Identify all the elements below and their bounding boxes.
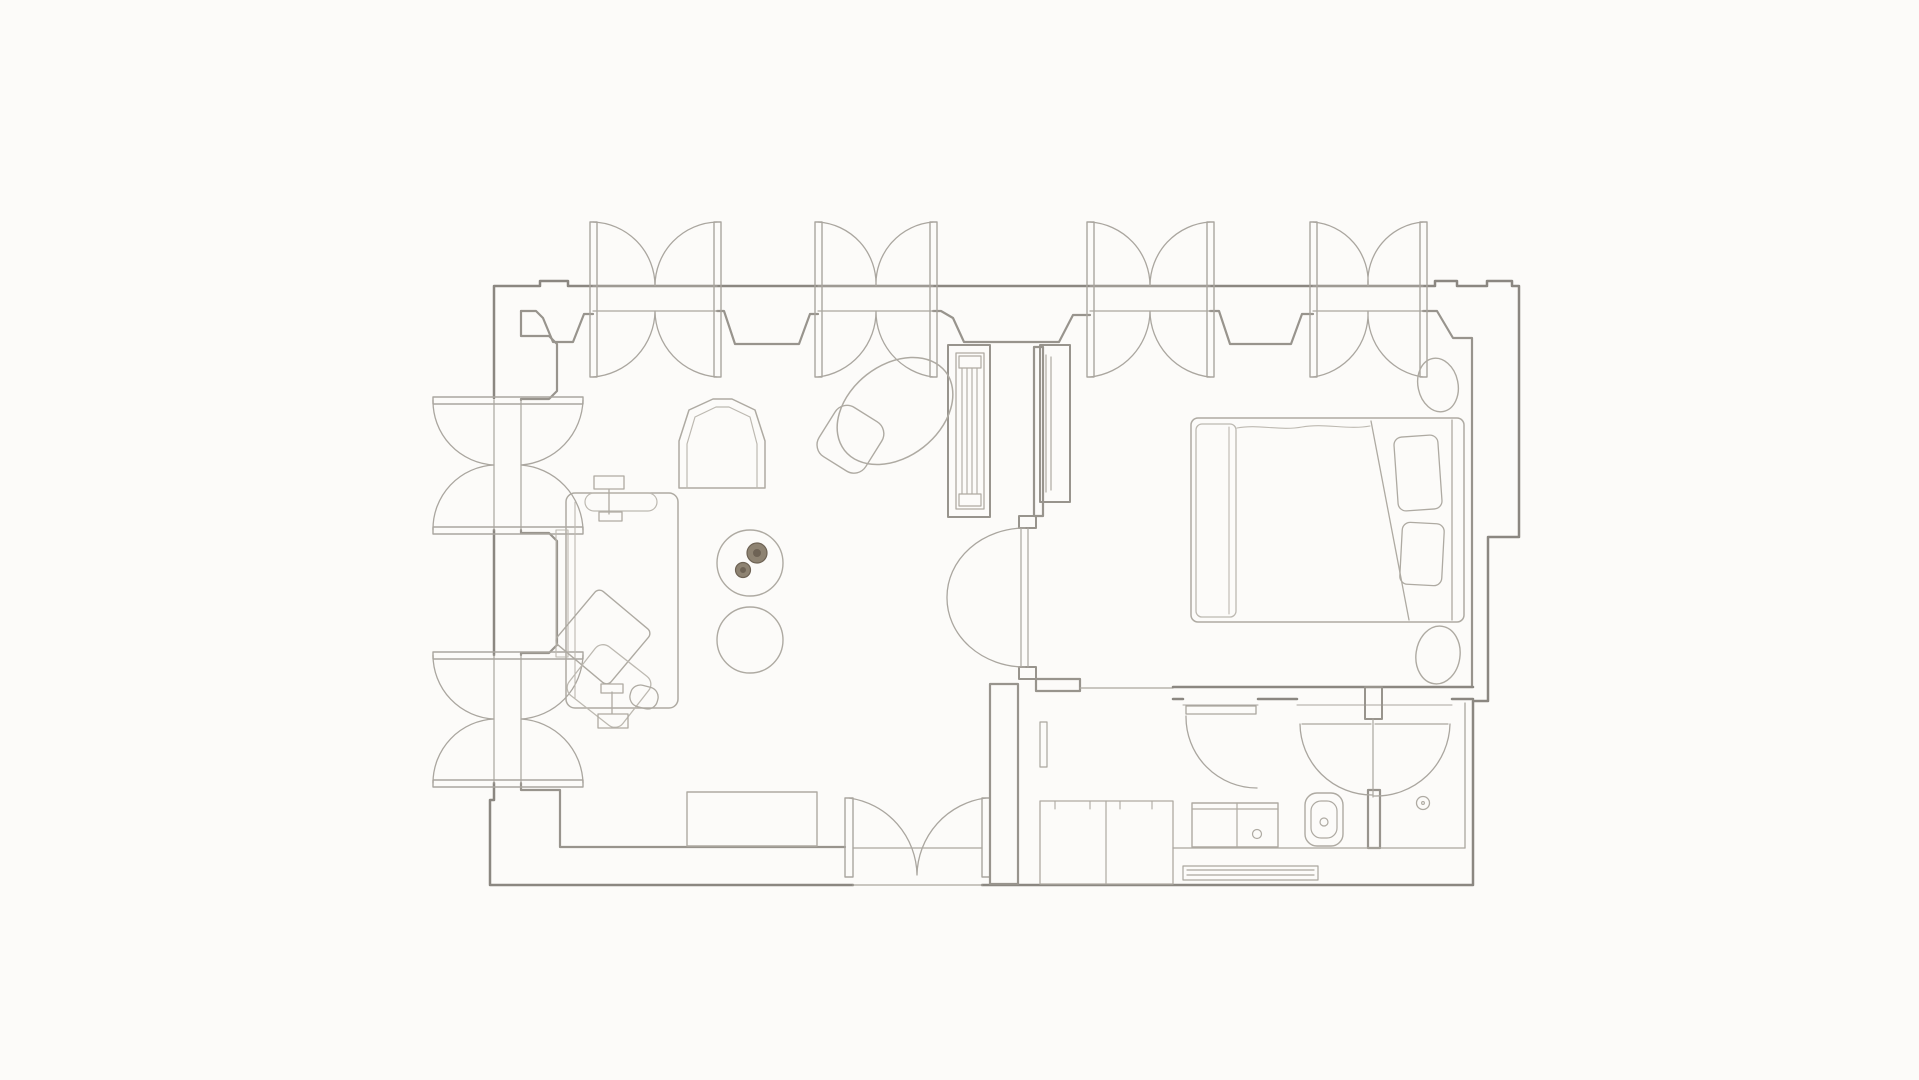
toilet-bowl-inner [1311, 801, 1337, 838]
window-1-leaf-right [714, 222, 721, 377]
toilet-flush-button [1320, 818, 1328, 826]
window-3-leaf-left [1087, 222, 1094, 377]
window-3-leaf-right [1207, 222, 1214, 377]
closet-living-inner [956, 353, 984, 509]
arch-armchair-outer [679, 399, 765, 488]
sofa-cushion-lower [563, 641, 655, 732]
hall-closet-hinge-ticks [1055, 801, 1152, 809]
partition-door-jamb-top [1019, 516, 1036, 528]
bed-foot-blanket [1196, 424, 1236, 617]
closet-bedroom-inner [1046, 355, 1051, 492]
partition-door-swing-arcs [947, 528, 1025, 667]
closet-living-louvers [962, 368, 977, 494]
left-window-1-leaf-top [433, 397, 583, 404]
round-side-table-flowers [717, 530, 783, 596]
desk-chair-south [598, 684, 628, 728]
shower-double-door-leaf-lines [1302, 719, 1448, 797]
window-4-leaf-left [1310, 222, 1317, 377]
closet-bedroom-outer [1040, 345, 1070, 502]
entry-door-leaf-right [982, 798, 990, 877]
partition-door-leaf-line [1021, 528, 1028, 667]
window-2-glazing [818, 286, 933, 311]
inner-wall-top [521, 311, 1472, 687]
inner-wall-left [521, 311, 557, 655]
oval-table-chair [812, 400, 889, 478]
bathroom-north-wall [1173, 687, 1473, 699]
window-3-swing-arcs [1090, 222, 1210, 377]
sideboard-bottom-wall [687, 792, 817, 846]
bathroom-door-left-swing-arc [1186, 716, 1257, 788]
window-1-glazing [593, 286, 717, 311]
round-side-table-plain [717, 607, 783, 673]
hall-wall-mirror [1040, 722, 1047, 767]
entry-door-swing-arcs [849, 798, 986, 875]
left-window-1-glazing [494, 400, 521, 530]
arch-armchair-inner [687, 407, 757, 488]
window-1-swing-arcs [593, 222, 717, 377]
bed-pillow-2 [1399, 522, 1444, 586]
window-4-leaf-right [1420, 222, 1427, 377]
sofa-armrest-bolster [585, 493, 657, 511]
desk-chair-north [594, 476, 624, 521]
bathroom-divider-nub [1365, 687, 1382, 719]
window-1-leaf-left [590, 222, 597, 377]
shower-drain [1417, 797, 1430, 810]
vanity-basin-drain [1253, 830, 1262, 839]
window-3-glazing [1090, 286, 1210, 311]
left-window-1-swing-arcs [433, 400, 583, 530]
left-window-2-leaf-top [433, 652, 583, 659]
bed-pillow-1 [1393, 435, 1442, 512]
window-2-swing-arcs [818, 222, 933, 377]
shower-drain-dot [1422, 802, 1425, 805]
vanity-counter-edge [1192, 803, 1278, 847]
window-4-swing-arcs [1313, 222, 1423, 377]
bed-duvet-diagonal-fold [1371, 421, 1409, 620]
hall-wall-stub [1036, 679, 1080, 691]
hall-west-wall [990, 684, 1018, 884]
flower-rosette-large-core [754, 550, 761, 557]
window-2-leaf-left [815, 222, 822, 377]
bathroom-wall-radiator [1183, 866, 1318, 880]
entry-door-leaf-left [845, 798, 853, 877]
left-window-2-glazing [494, 655, 521, 783]
shower-double-door-swing-arcs [1300, 724, 1450, 796]
window-4-glazing [1313, 286, 1423, 311]
bathroom-door-left-leaf [1186, 706, 1256, 714]
bedside-pouf-south [1412, 623, 1464, 687]
partition-wall-stem [1034, 347, 1043, 516]
left-window-2-leaf-bottom [433, 780, 583, 787]
bed-duvet-edge-wavy [1237, 426, 1370, 429]
floor-plan-drawing [0, 0, 1919, 1080]
flower-rosette-small-core [741, 568, 746, 573]
floor-plan-page [0, 0, 1919, 1080]
bed-mattress [1191, 418, 1464, 622]
window-2-leaf-right [930, 222, 937, 377]
left-window-2-swing-arcs [433, 655, 583, 783]
partition-door-jamb-bottom [1019, 667, 1036, 679]
bathroom-divider-wall [1368, 790, 1380, 848]
